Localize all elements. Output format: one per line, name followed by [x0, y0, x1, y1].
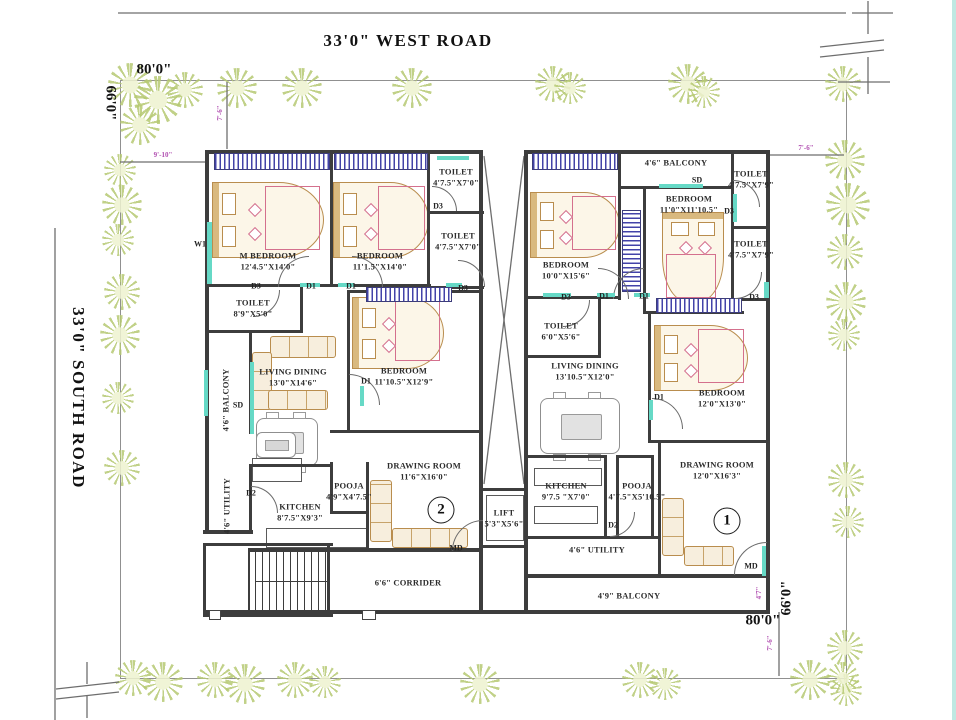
door-tag: W1 [194, 240, 206, 249]
chair-icon [293, 412, 306, 419]
wall [527, 574, 769, 578]
wall [479, 152, 483, 492]
wall [347, 290, 350, 432]
room-label: M BEDROOM 12'4.5"X14'0" [240, 250, 297, 271]
wall [604, 455, 607, 538]
kitchen-counter [252, 458, 302, 482]
bed-headboard [334, 183, 340, 257]
glass-window [659, 184, 703, 188]
door-tag: D3 [561, 293, 571, 302]
room-label: TOILET 8'9"X5'0" [233, 297, 272, 318]
plot-dim-right: 66'0" [779, 581, 796, 616]
room-label: KITCHEN 9'7.5 "X7'0" [542, 480, 590, 501]
wall [427, 211, 484, 214]
window-strip [656, 298, 742, 313]
pillow-icon [671, 222, 689, 236]
diamond-ornament [382, 339, 396, 353]
wall [648, 440, 768, 443]
dimension-label: 9'-10" [154, 151, 173, 159]
tv-unit-icon [256, 432, 296, 458]
door-tag: D1 [361, 377, 371, 386]
plot-dim-left: 66'0" [102, 86, 119, 121]
diamond-ornament [382, 317, 396, 331]
door-tag: MD [449, 544, 462, 553]
glass-window [764, 282, 769, 298]
mattress-outline [572, 196, 616, 250]
south-road-label: 33'0" SOUTH ROAD [68, 307, 88, 489]
pillow-icon [222, 226, 236, 247]
dimension-label: 7'-6" [766, 635, 774, 650]
wall [527, 536, 661, 539]
door-tag: D3 [724, 207, 734, 216]
door-tag: D1 [639, 292, 649, 301]
wall [203, 543, 333, 546]
room-label: 4'9" BALCONY [598, 591, 661, 602]
door-tag: D3 [749, 293, 759, 302]
door-tag: SD [692, 176, 702, 185]
unit-number-badge: 1 [714, 508, 741, 535]
room-label: 4'6" UTILITY [569, 545, 625, 556]
pillow-icon [664, 335, 678, 354]
door-tag: MD [744, 562, 757, 571]
room-label: DRAWING ROOM 11'6"X16'0" [387, 460, 461, 481]
wall [332, 511, 368, 514]
tv-screen [265, 440, 288, 451]
table-top [561, 414, 602, 440]
wall [327, 543, 330, 617]
room-label: BEDROOM 10'0"X15'6" [542, 259, 590, 280]
sofa-icon [268, 390, 328, 410]
room-label: TOILET 6'0"X5'6" [541, 320, 580, 341]
bed-icon [654, 325, 748, 391]
wall [300, 287, 303, 332]
bed-headboard [213, 183, 219, 257]
wall [616, 455, 654, 458]
bed-headboard [353, 298, 359, 368]
glass-window [207, 222, 212, 284]
wall [203, 543, 206, 617]
room-label: TOILET 4'7.5"X7'9" [728, 168, 774, 189]
wall [205, 150, 209, 534]
door-tag: D3 [458, 284, 468, 293]
diamond-ornament [684, 364, 698, 378]
wall [479, 545, 528, 548]
bed-headboard [655, 326, 661, 390]
mattress-outline [378, 186, 425, 250]
pillow-icon [343, 226, 357, 247]
room-label: DRAWING ROOM 12'0"X16'3" [680, 459, 754, 480]
room-label: 4'6" BALCONY [645, 158, 708, 169]
diamond-ornament [364, 203, 378, 217]
door-tag: D3 [433, 202, 443, 211]
door-tag: D1 [599, 292, 609, 301]
window-strip [366, 287, 452, 302]
dimension-label: 4'7" [755, 587, 763, 600]
dimension-label: 7'-6" [216, 105, 224, 120]
door-tag: D2 [246, 489, 256, 498]
window-strip [334, 153, 428, 170]
room-label: POOJA 4'7.5"X5'10.5" [608, 480, 665, 501]
glass-window [762, 546, 766, 576]
unit-number-badge: 2 [428, 497, 455, 524]
wall [479, 488, 528, 491]
plot-dim-bottom: 80'0" [746, 613, 781, 630]
bed-icon [352, 297, 444, 369]
dimension-label: 7'-6" [798, 144, 813, 152]
wall [648, 311, 651, 442]
plot-dim-top: 80'0" [137, 62, 172, 79]
room-label: BEDROOM 11'1.5"X14'0" [353, 250, 407, 271]
wall [249, 464, 333, 467]
room-label: 4'6" UTILITY [222, 478, 233, 534]
sofa-icon [684, 546, 734, 566]
column-post [362, 610, 376, 620]
wall [330, 430, 482, 433]
room-label: LIVING DINING 13'0"X14'6" [259, 366, 327, 387]
room-label: BEDROOM 11'0"X11'10.5" [660, 193, 718, 214]
door-tag: D3 [251, 282, 261, 291]
wall [205, 330, 303, 333]
mattress-outline [698, 329, 744, 383]
column-post [209, 610, 221, 620]
chair-icon [588, 392, 601, 399]
pillow-icon [362, 339, 376, 359]
door-tag: D1 [346, 282, 356, 291]
bed-icon [530, 192, 620, 258]
room-label: KITCHEN 8'7.5"X9'3" [277, 501, 323, 522]
diamond-ornament [684, 343, 698, 357]
glass-window [250, 362, 254, 434]
window-strip [214, 153, 330, 170]
mattress-outline [265, 186, 320, 250]
wall [427, 154, 430, 288]
diamond-ornament [248, 227, 262, 241]
door-tag: D1 [306, 282, 316, 291]
pillow-icon [698, 222, 716, 236]
pillow-icon [362, 308, 376, 328]
room-label: 6'6" CORRIDER [375, 578, 442, 589]
diamond-ornament [364, 227, 378, 241]
sofa-icon [662, 498, 684, 556]
room-label: TOILET 4'7.5"X7'0" [435, 230, 481, 251]
diamond-ornament [248, 203, 262, 217]
pillow-icon [343, 193, 357, 214]
wall [731, 226, 769, 229]
mattress-outline [666, 254, 716, 298]
wall [658, 440, 661, 576]
mattress-outline [395, 301, 440, 361]
wall [366, 462, 369, 550]
pillow-icon [540, 202, 554, 221]
wall [248, 548, 250, 612]
floor-plan-drawing: M BEDROOM 12'4.5"X14'0"BEDROOM 11'1.5"X1… [0, 0, 956, 720]
image-edge-strip [952, 0, 956, 720]
room-label: BEDROOM 11'10.5"X12'9" [375, 365, 434, 386]
sofa-icon [370, 480, 392, 542]
kitchen-counter [534, 506, 598, 524]
wall [527, 455, 607, 458]
door-tag: D2 [608, 521, 618, 530]
room-label: LIVING DINING 13'10.5"X12'0" [551, 360, 619, 381]
room-label: LIFT 5'3"X5'6" [484, 507, 523, 528]
wall [598, 298, 601, 358]
door-tag: SD [233, 401, 243, 410]
west-road-label: 33'0" WEST ROAD [323, 31, 492, 51]
pillow-icon [540, 230, 554, 249]
dining-table-icon [540, 398, 620, 454]
sofa-icon [270, 336, 336, 358]
chair-icon [266, 412, 279, 419]
bed-icon [662, 212, 724, 302]
glass-window [437, 156, 469, 160]
bed-icon [333, 182, 429, 258]
glass-window [649, 400, 653, 420]
room-label: 4'6" BALCONY [221, 369, 232, 432]
pillow-icon [222, 193, 236, 214]
wall [527, 355, 601, 358]
wall [203, 614, 333, 617]
bed-headboard [531, 193, 537, 257]
stair-mid-line [255, 581, 327, 582]
wall [330, 154, 333, 286]
room-label: BEDROOM 12'0"X13'0" [698, 387, 746, 408]
window-strip [532, 153, 618, 170]
bed-icon [212, 182, 324, 258]
pillow-icon [664, 363, 678, 382]
room-label: TOILET 4'7.5"X7'9" [728, 238, 774, 259]
chair-icon [553, 392, 566, 399]
room-label: POOJA 4'9"X4'7.5" [326, 480, 372, 501]
room-label: TOILET 4'7.5"X7'0" [433, 166, 479, 187]
glass-window [204, 370, 208, 416]
glass-window [360, 386, 364, 406]
wall [524, 152, 528, 612]
door-tag: D1 [654, 393, 664, 402]
